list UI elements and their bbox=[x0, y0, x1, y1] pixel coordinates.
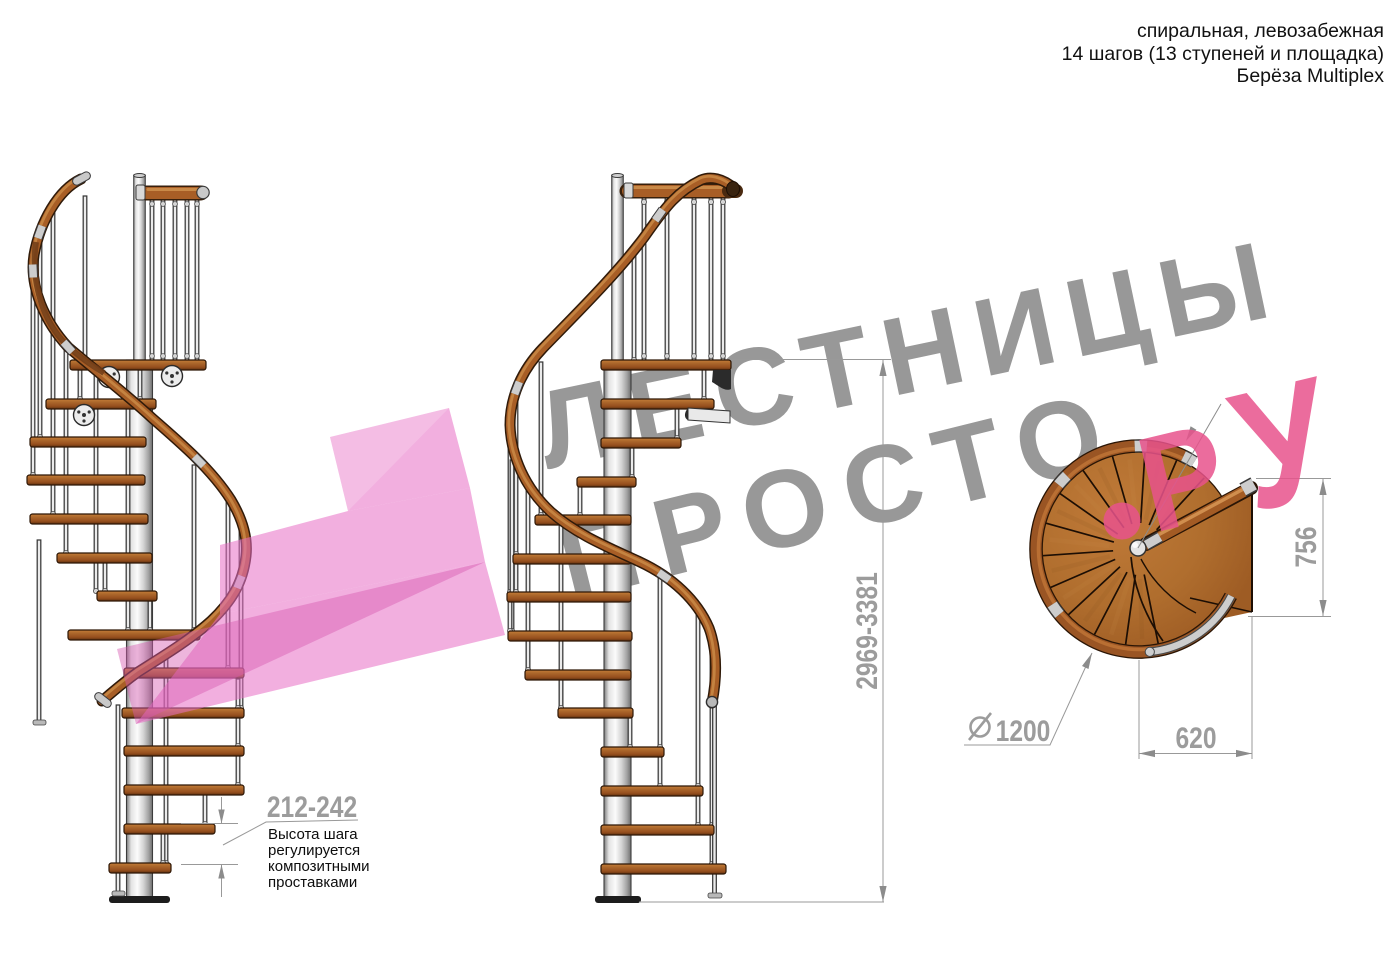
svg-text:2969-3381: 2969-3381 bbox=[850, 572, 884, 690]
svg-text:14 шагов (13 ступеней и площад: 14 шагов (13 ступеней и площадка) bbox=[1062, 43, 1384, 65]
svg-text:212-242: 212-242 bbox=[267, 790, 357, 824]
svg-text:Высота шага: Высота шага bbox=[268, 826, 358, 843]
svg-text:проставками: проставками bbox=[268, 874, 357, 891]
svg-text:Берёза Multiplex: Берёза Multiplex bbox=[1237, 65, 1385, 87]
svg-text:спиральная, левозабежная: спиральная, левозабежная bbox=[1137, 20, 1384, 42]
svg-text:регулируется: регулируется bbox=[268, 842, 360, 859]
svg-text:1200: 1200 bbox=[996, 714, 1051, 748]
svg-text:620: 620 bbox=[1175, 721, 1216, 755]
svg-text:композитными: композитными bbox=[268, 858, 370, 875]
